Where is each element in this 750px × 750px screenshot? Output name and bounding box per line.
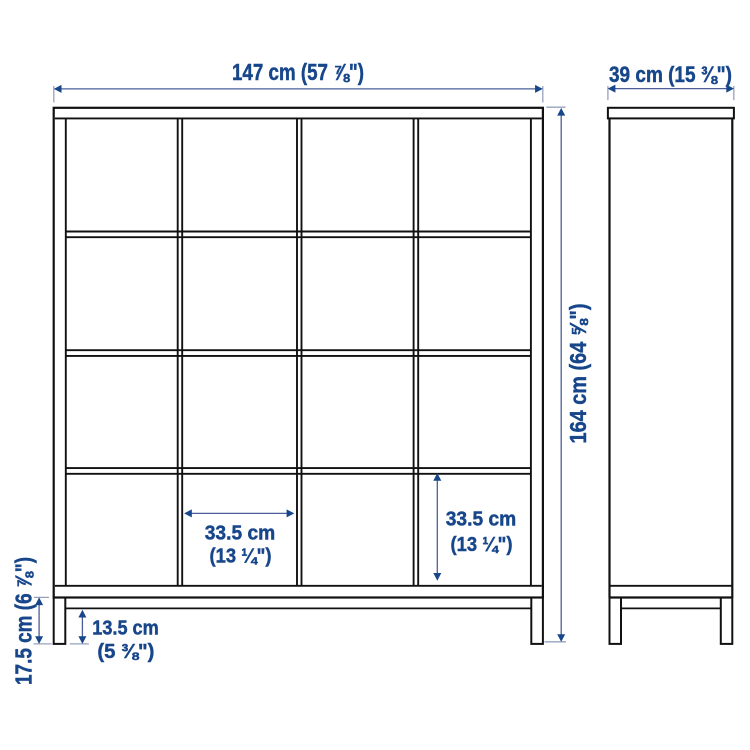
svg-text:33.5 cm: 33.5 cm bbox=[205, 523, 276, 545]
svg-text:147 cm (57 ⅞"): 147 cm (57 ⅞") bbox=[232, 59, 364, 85]
svg-text:164 cm (64 ⅝"): 164 cm (64 ⅝") bbox=[565, 304, 591, 444]
svg-text:13.5 cm: 13.5 cm bbox=[92, 618, 159, 640]
svg-text:39 cm (15 ⅜"): 39 cm (15 ⅜") bbox=[609, 62, 732, 87]
svg-text:(5 ⅜"): (5 ⅜") bbox=[97, 641, 154, 663]
svg-text:(13 ¼"): (13 ¼") bbox=[451, 534, 513, 556]
svg-text:17.5 cm (6 ⅞"): 17.5 cm (6 ⅞") bbox=[11, 557, 37, 685]
svg-text:33.5 cm: 33.5 cm bbox=[446, 509, 517, 531]
svg-text:(13 ¼"): (13 ¼") bbox=[210, 546, 272, 568]
